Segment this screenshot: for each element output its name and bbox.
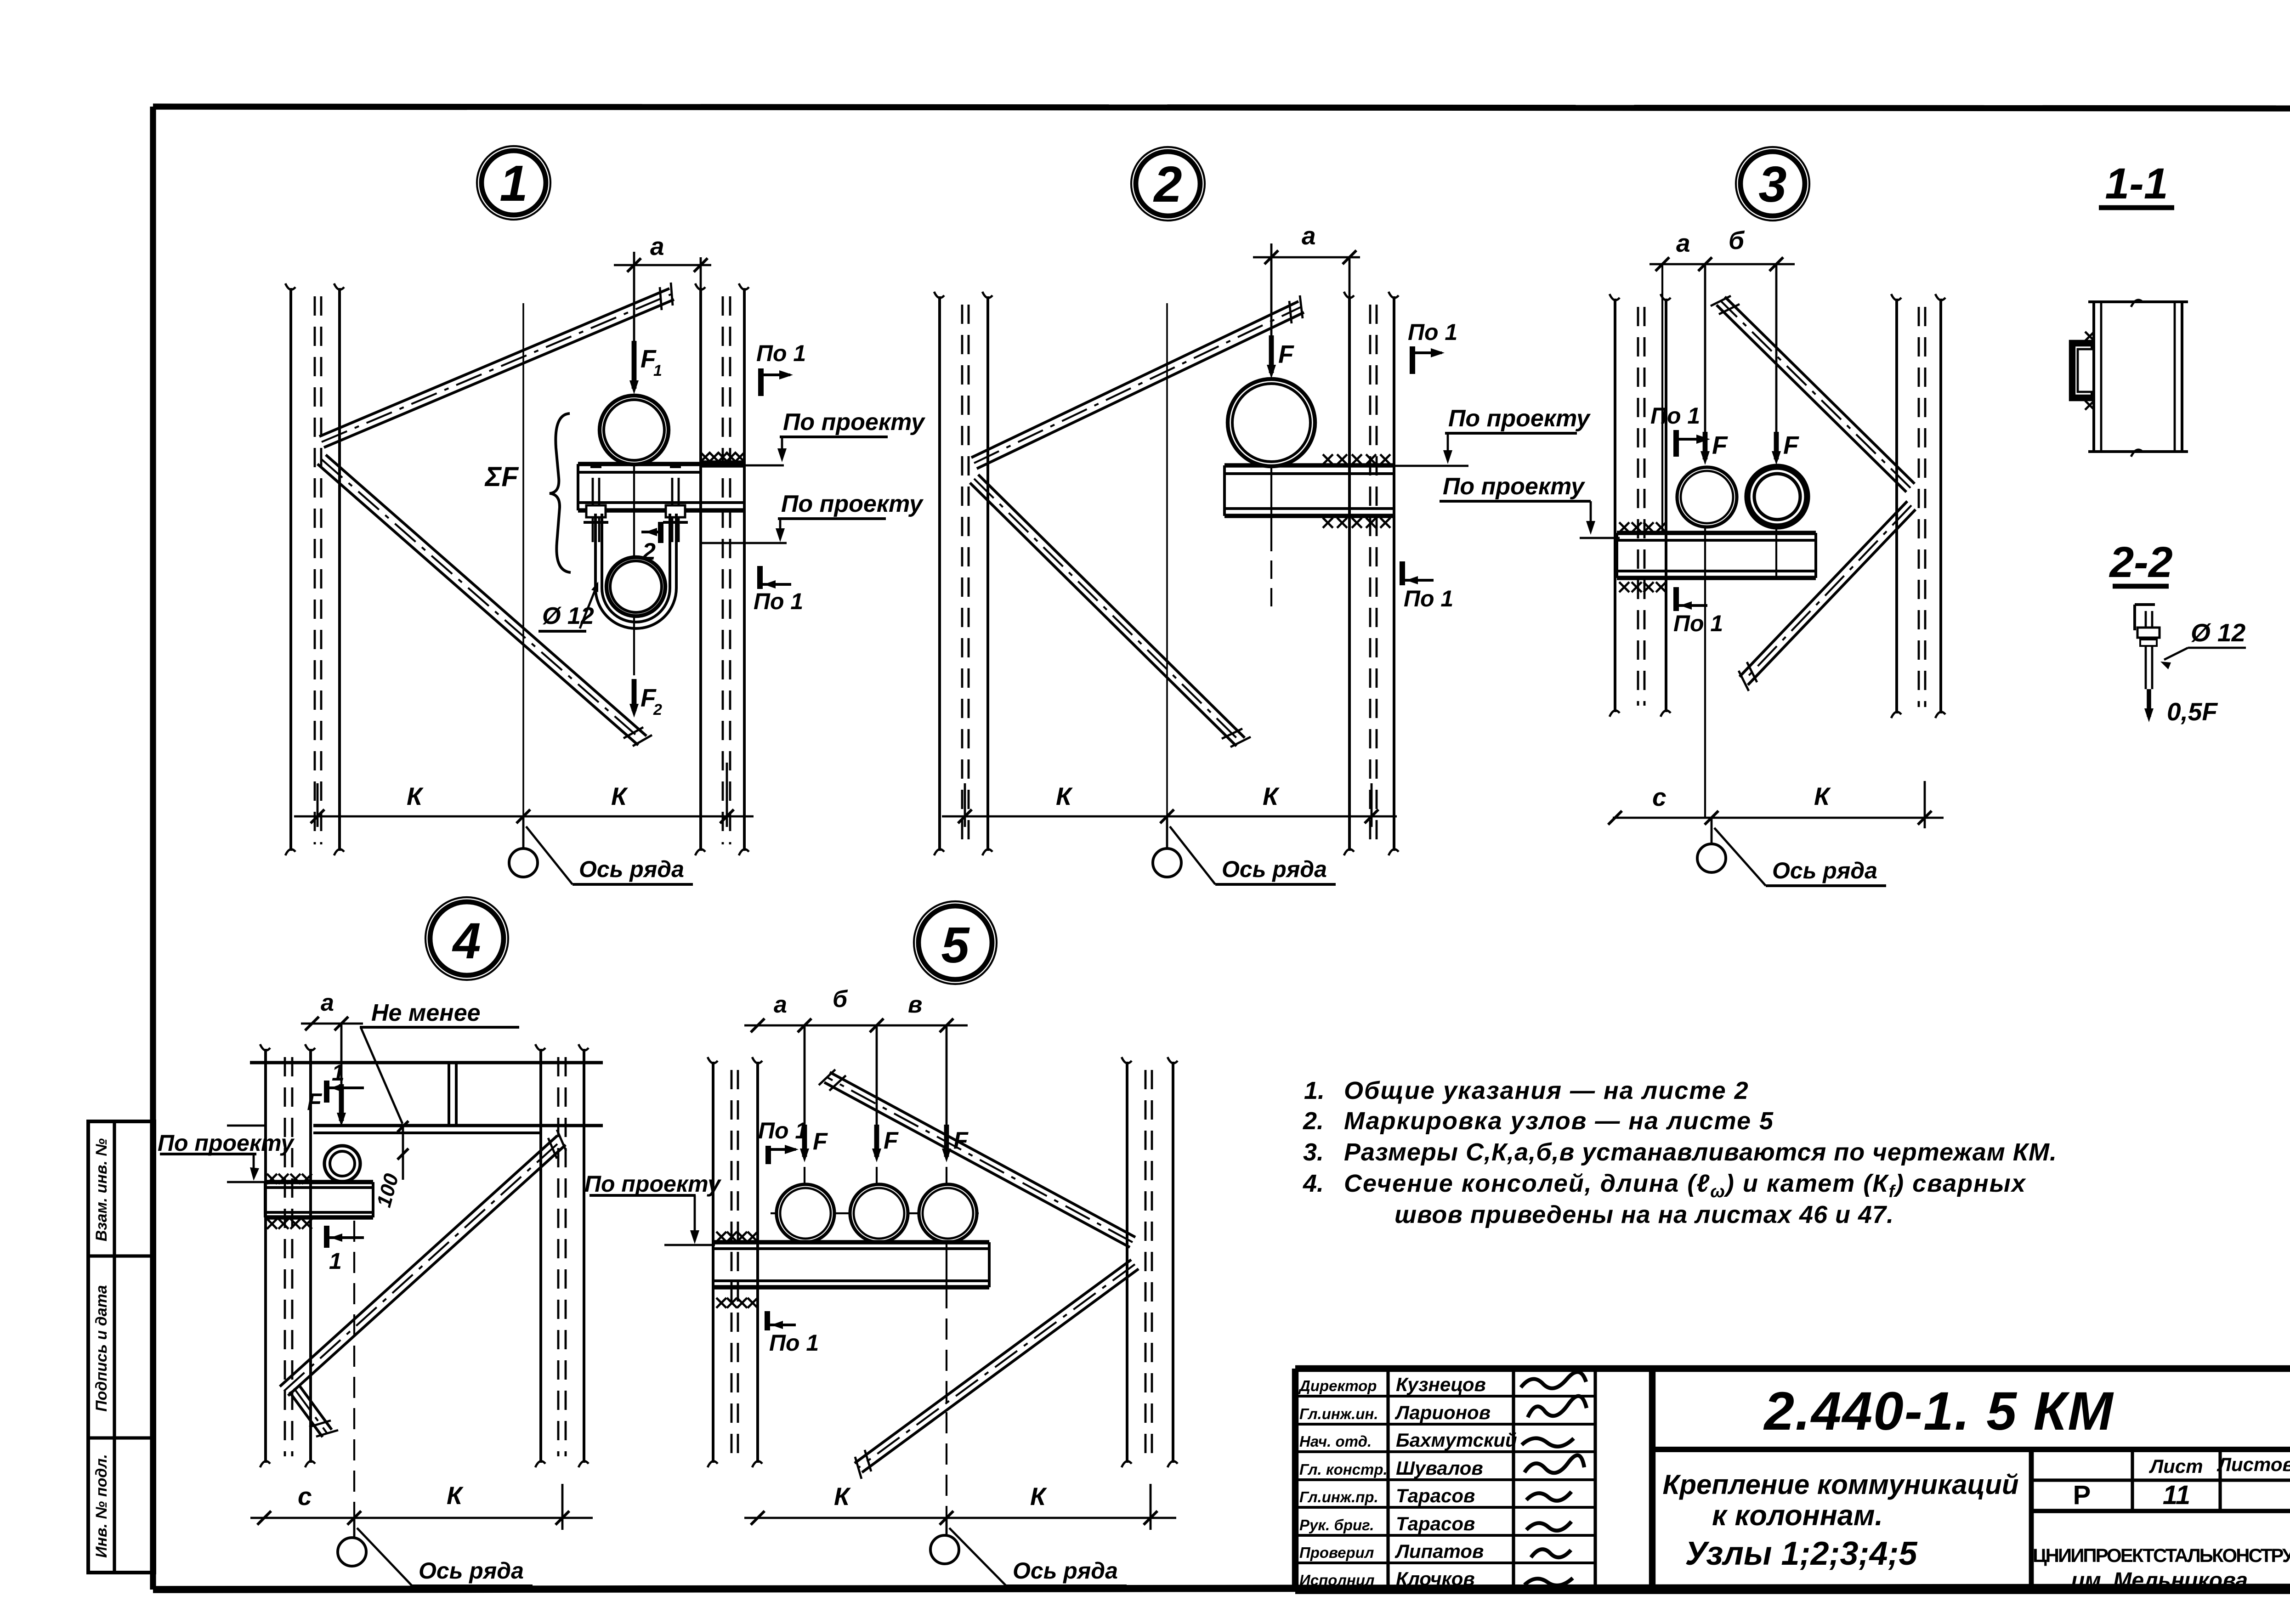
- svg-text:1: 1: [332, 1060, 345, 1086]
- svg-text:По проекту: По проекту: [584, 1171, 721, 1197]
- svg-text:Гл. констр.: Гл. констр.: [1299, 1461, 1388, 1478]
- svg-text:2.440-1. 5 КМ: 2.440-1. 5 КМ: [1763, 1381, 2114, 1442]
- svg-text:Клочков: Клочков: [1396, 1568, 1475, 1590]
- svg-text:Бахмутский: Бахмутский: [1396, 1429, 1517, 1451]
- svg-text:0,5F: 0,5F: [2167, 697, 2218, 726]
- svg-text:К: К: [1056, 782, 1073, 810]
- svg-text:5: 5: [941, 917, 970, 973]
- svg-text:По 1: По 1: [758, 1118, 808, 1143]
- svg-text:К: К: [1263, 782, 1280, 810]
- svg-text:Маркировка узлов — на листе 5: Маркировка узлов — на листе 5: [1344, 1107, 1774, 1135]
- svg-text:11: 11: [2163, 1480, 2190, 1510]
- svg-text:2-2: 2-2: [2109, 538, 2172, 587]
- svg-text:К: К: [447, 1481, 464, 1510]
- svg-text:К: К: [834, 1482, 851, 1511]
- svg-text:Р: Р: [2073, 1480, 2091, 1510]
- svg-text:F: F: [953, 1127, 969, 1154]
- svg-text:Лист: Лист: [2148, 1455, 2203, 1477]
- svg-text:Нач. отд.: Нач. отд.: [1299, 1433, 1372, 1450]
- svg-text:По проекту: По проекту: [781, 491, 924, 517]
- svg-text:4.: 4.: [1303, 1170, 1324, 1197]
- svg-text:3: 3: [1758, 156, 1786, 213]
- svg-text:Рук. бриг.: Рук. бриг.: [1299, 1516, 1374, 1533]
- svg-text:Взам. инв. №: Взам. инв. №: [93, 1138, 110, 1242]
- svg-text:в: в: [908, 991, 922, 1018]
- svg-text:3.: 3.: [1303, 1138, 1324, 1166]
- svg-text:По 1: По 1: [754, 588, 803, 614]
- svg-text:Липатов: Липатов: [1394, 1540, 1484, 1562]
- svg-text:По проекту: По проекту: [1448, 405, 1591, 432]
- svg-text:По 1: По 1: [1404, 586, 1453, 611]
- svg-text:По проекту: По проекту: [158, 1130, 295, 1156]
- svg-text:к колоннам.: к колоннам.: [1712, 1500, 1883, 1532]
- svg-text:По 1: По 1: [1673, 611, 1723, 636]
- svg-text:Проверил: Проверил: [1299, 1544, 1374, 1561]
- svg-text:Узлы 1;2;3;4;5: Узлы 1;2;3;4;5: [1685, 1535, 1917, 1572]
- svg-text:Ось ряда: Ось ряда: [1772, 858, 1877, 883]
- svg-text:Тарасов: Тарасов: [1396, 1485, 1475, 1506]
- svg-text:Крепление коммуникаций: Крепление коммуникаций: [1662, 1469, 2018, 1500]
- svg-text:a: a: [650, 232, 664, 260]
- svg-text:4: 4: [452, 913, 481, 969]
- svg-text:По проекту: По проекту: [783, 409, 926, 436]
- svg-text:Ø 12: Ø 12: [542, 603, 594, 629]
- svg-text:Ось ряда: Ось ряда: [579, 856, 684, 882]
- svg-text:По 1: По 1: [1650, 403, 1700, 429]
- svg-text:1: 1: [329, 1248, 342, 1274]
- svg-text:2: 2: [653, 701, 662, 719]
- svg-text:Не менее: Не менее: [371, 1000, 481, 1026]
- svg-text:б: б: [833, 986, 848, 1013]
- svg-text:1: 1: [653, 362, 662, 379]
- svg-text:Кузнецов: Кузнецов: [1396, 1374, 1486, 1395]
- svg-text:1: 1: [499, 155, 527, 212]
- svg-text:ΣF: ΣF: [484, 461, 519, 492]
- svg-text:a: a: [321, 990, 334, 1016]
- svg-text:2: 2: [642, 538, 656, 565]
- svg-text:Шувалов: Шувалов: [1396, 1457, 1483, 1479]
- svg-text:2.: 2.: [1303, 1107, 1324, 1135]
- svg-text:1.: 1.: [1304, 1077, 1325, 1104]
- svg-text:б: б: [1729, 226, 1745, 255]
- svg-text:швов приведены на на листах: швов приведены на на листах 46 и 47.: [1394, 1201, 1894, 1228]
- svg-text:По проекту: По проекту: [1443, 473, 1586, 500]
- svg-text:F: F: [884, 1127, 899, 1154]
- svg-text:2: 2: [1153, 156, 1182, 213]
- svg-text:a: a: [774, 991, 787, 1018]
- svg-text:a: a: [1302, 221, 1316, 250]
- svg-text:Ø 12: Ø 12: [2191, 618, 2246, 647]
- svg-text:Ларионов: Ларионов: [1394, 1402, 1491, 1423]
- svg-text:с: с: [1652, 783, 1666, 811]
- svg-text:Ось ряда: Ось ряда: [1222, 856, 1327, 882]
- svg-text:F: F: [813, 1128, 828, 1155]
- svg-text:Директор: Директор: [1298, 1377, 1377, 1394]
- svg-text:Исполнил: Исполнил: [1299, 1572, 1375, 1589]
- svg-text:1-1: 1-1: [2105, 159, 2168, 208]
- svg-text:a: a: [1676, 229, 1690, 257]
- svg-text:с: с: [298, 1482, 312, 1511]
- svg-text:Ось ряда: Ось ряда: [1013, 1558, 1118, 1584]
- svg-text:По 1: По 1: [1408, 319, 1457, 345]
- svg-text:Сечение консолей, длина (ℓω): Сечение консолей, длина (ℓω) и катет (Кf…: [1344, 1170, 2026, 1201]
- svg-text:К: К: [1030, 1482, 1047, 1511]
- svg-text:F: F: [307, 1089, 322, 1115]
- svg-text:F: F: [1712, 431, 1728, 459]
- svg-text:Гл.инж.ин.: Гл.инж.ин.: [1299, 1405, 1378, 1422]
- svg-text:К: К: [407, 782, 424, 810]
- svg-text:F: F: [1278, 340, 1294, 368]
- svg-text:По 1: По 1: [756, 340, 806, 366]
- svg-text:Подпись и дата: Подпись и дата: [93, 1285, 110, 1412]
- svg-text:К: К: [611, 782, 628, 810]
- svg-text:Гл.инж.пр.: Гл.инж.пр.: [1299, 1488, 1378, 1505]
- svg-text:Тарасов: Тарасов: [1396, 1513, 1475, 1534]
- svg-text:им. Мельникова: им. Мельникова: [2071, 1568, 2248, 1593]
- svg-text:Инв. № подл.: Инв. № подл.: [93, 1454, 110, 1558]
- svg-text:Листов: Листов: [2216, 1454, 2290, 1475]
- svg-text:К: К: [1814, 782, 1831, 810]
- svg-text:Общие указания — на листе 2: Общие указания — на листе 2: [1344, 1077, 1749, 1104]
- svg-text:ЦНИИПРОЕКТСТАЛЬКОНСТРУКЦИ: ЦНИИПРОЕКТСТАЛЬКОНСТРУКЦИ: [2033, 1545, 2290, 1566]
- svg-text:F: F: [1783, 431, 1799, 459]
- svg-text:По 1: По 1: [769, 1330, 819, 1356]
- svg-text:Ось ряда: Ось ряда: [419, 1558, 524, 1584]
- svg-text:Размеры С,К,а,б,в устанавлив: Размеры С,К,а,б,в устанавливаются по чер…: [1344, 1138, 2057, 1166]
